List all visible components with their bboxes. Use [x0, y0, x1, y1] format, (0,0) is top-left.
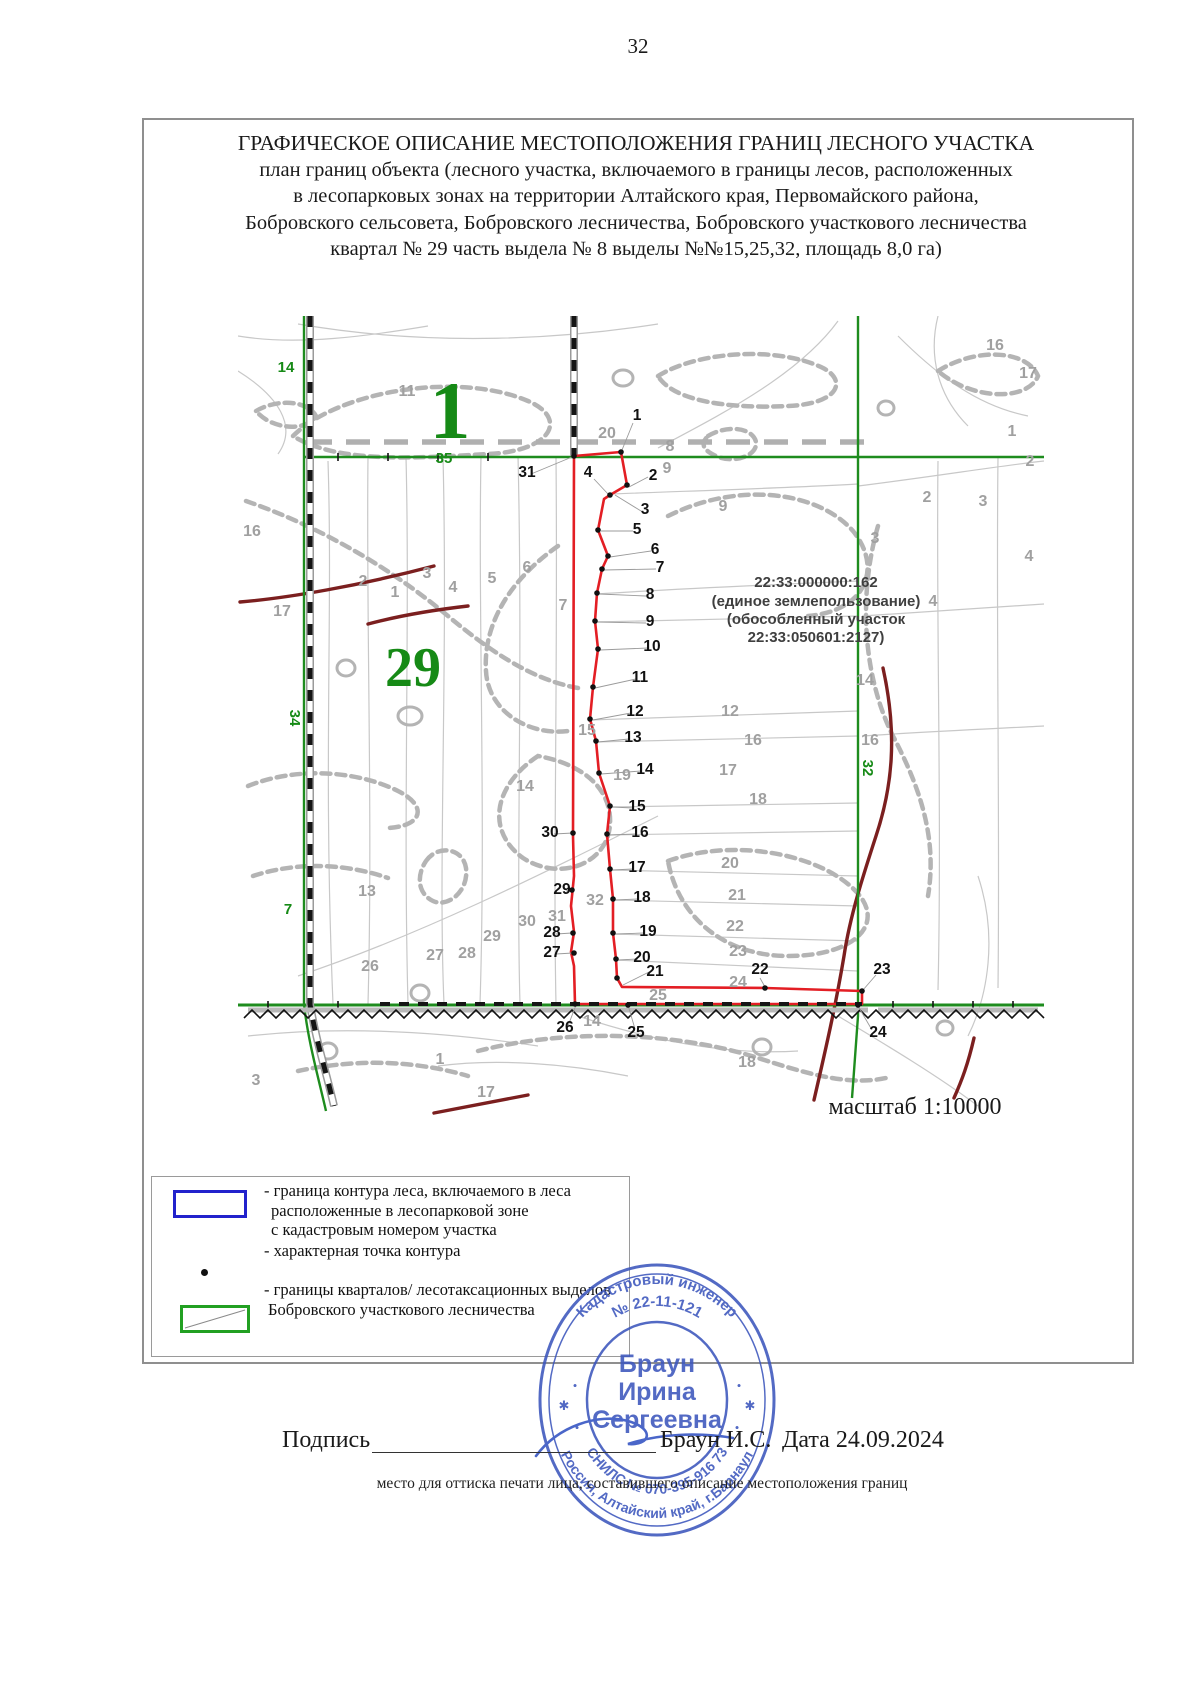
svg-text:•: • [737, 1378, 742, 1393]
svg-text:✱: ✱ [745, 1398, 756, 1413]
title-line-3: в лесопарковых зонах на территории Алтай… [150, 183, 1122, 210]
map-label: 22 [726, 918, 744, 935]
map-label: 34 [286, 710, 303, 727]
map-label: 4 [584, 464, 593, 481]
legend-symbol-quartal-boundary [180, 1305, 250, 1333]
map-label: 11 [399, 383, 416, 400]
map-label: 21 [646, 963, 664, 980]
map-label: 14 [516, 778, 534, 795]
signature-line [372, 1452, 656, 1453]
map-label: 31 [518, 464, 536, 481]
map-scale: масштаб 1:10000 [800, 1094, 1030, 1121]
stamp-place-note: место для оттиска печати лица, составивш… [242, 1475, 1042, 1493]
stamp-name-line2: Ирина [618, 1378, 697, 1406]
map-label: 35 [436, 450, 453, 467]
legend-symbol-point [201, 1269, 208, 1276]
map-label: 3 [871, 530, 880, 547]
map-label: 1 [1008, 423, 1017, 440]
map-label: 14 [856, 672, 874, 689]
map-label: 25 [649, 987, 667, 1004]
map-label: 30 [541, 824, 558, 841]
map-label: 2 [359, 573, 368, 590]
svg-text:№ 22-11-121: № 22-11-121 [609, 1293, 705, 1322]
legend-item-point: - характерная точка контура [264, 1241, 460, 1261]
map-label: 2 [923, 489, 932, 506]
map-label: 1 [430, 365, 471, 456]
map-label: 14 [278, 359, 295, 376]
map-label: 16 [631, 824, 649, 841]
map-label: 24 [869, 1024, 887, 1041]
map-label: 3 [423, 565, 432, 582]
map-label: 17 [273, 603, 291, 620]
map-label: 3 [641, 501, 650, 518]
map-label: 16 [986, 337, 1004, 354]
map-label: 24 [729, 974, 747, 991]
map-label: 1 [633, 407, 642, 424]
map-label: 25 [627, 1024, 645, 1041]
map-label: 26 [361, 958, 379, 975]
map-label: 15 [578, 722, 596, 739]
engineer-stamp: Кадастровый инженер № 22-11-121 Россия, … [527, 1260, 787, 1540]
map-label: 32 [586, 892, 604, 909]
map-label: 9 [663, 460, 672, 477]
map-label: 18 [738, 1054, 756, 1071]
legend-text: - характерная точка контура [264, 1241, 460, 1261]
map-label: 27 [543, 944, 560, 961]
map-label: 20 [598, 425, 616, 442]
svg-text:•: • [573, 1378, 578, 1393]
title-line-1: ГРАФИЧЕСКОЕ ОПИСАНИЕ МЕСТОПОЛОЖЕНИЯ ГРАН… [150, 130, 1122, 157]
legend-symbol-parcel-boundary [173, 1190, 247, 1218]
map-label: 4 [929, 593, 938, 610]
legend-text: - граница контура леса, включаемого в ле… [264, 1181, 571, 1201]
map-label: 11 [632, 669, 649, 686]
map-label: 17 [628, 859, 645, 876]
svg-text:(единое землепользование): (единое землепользование) [712, 593, 921, 610]
map-label: 19 [639, 923, 657, 940]
map-label: 4 [1025, 548, 1034, 565]
map-label: 16 [243, 523, 261, 540]
map-label: 16 [744, 732, 762, 749]
map-label: 3 [252, 1072, 261, 1089]
map-label: 6 [651, 541, 660, 558]
map-label: 17 [1019, 365, 1037, 382]
signature-date: Дата 24.09.2024 [782, 1427, 944, 1454]
map-label: 16 [861, 732, 879, 749]
date-label: Дата [782, 1427, 830, 1453]
title-line-4: Бобровского сельсовета, Бобровского лесн… [150, 210, 1122, 237]
map-label: 12 [721, 703, 739, 720]
map-label: 17 [719, 762, 737, 779]
map-label: 10 [643, 638, 660, 655]
map-label: 3 [979, 493, 988, 510]
legend-text: с кадастровым номером участка [264, 1220, 571, 1240]
map-label: 20 [721, 855, 739, 872]
map-label: 8 [666, 438, 675, 455]
railway-line-left [310, 316, 334, 1106]
map-label: 18 [633, 889, 651, 906]
map-label: 31 [548, 908, 566, 925]
map-label: 12 [626, 703, 643, 720]
map-label: 13 [624, 729, 642, 746]
map-label: 1 [391, 584, 400, 601]
title-line-5: квартал № 29 часть выдела № 8 выделы №№1… [150, 236, 1122, 263]
signer-name: Браун И.С. [660, 1427, 771, 1454]
map-label: 15 [628, 798, 646, 815]
title-line-2: план границ объекта (лесного участка, вк… [150, 157, 1122, 184]
map-label: 23 [729, 943, 747, 960]
map-label: 18 [749, 791, 767, 808]
map-label: 7 [284, 901, 292, 918]
svg-text:(обособленный участок: (обособленный участок [727, 611, 906, 628]
legend-item-parcel: - граница контура леса, включаемого в ле… [264, 1181, 571, 1240]
svg-text:22:33:050601:2127): 22:33:050601:2127) [748, 629, 885, 646]
map-label: 14 [583, 1013, 601, 1030]
page-number: 32 [608, 34, 668, 59]
stamp-name-line1: Браун [619, 1350, 695, 1378]
map-label: 19 [613, 767, 631, 784]
map-label: 22 [751, 961, 768, 978]
document-page: { "page_number": "32", "title": { "line1… [0, 0, 1200, 1697]
map-label: 13 [358, 883, 376, 900]
map-label: 7 [559, 597, 568, 614]
map-label: 21 [728, 887, 746, 904]
map-label: 9 [646, 613, 655, 630]
diagonal-line-icon [183, 1308, 247, 1330]
map-label: 5 [488, 570, 497, 587]
map-label: 27 [426, 947, 444, 964]
map-label: 29 [483, 928, 501, 945]
map-label: 9 [719, 498, 728, 515]
map-label: 7 [656, 559, 665, 576]
map-label: 28 [458, 945, 476, 962]
map-label: 29 [553, 881, 571, 898]
map-label: 2 [649, 467, 658, 484]
map-label: 8 [646, 586, 655, 603]
map-label: 32 [859, 760, 876, 777]
signature-label: Подпись [282, 1427, 370, 1454]
map-label: 23 [873, 961, 891, 978]
date-value: 24.09.2024 [836, 1427, 944, 1453]
map-label: 4 [449, 579, 458, 596]
parcel-boundary [571, 452, 862, 1004]
map-label: 28 [543, 924, 561, 941]
map-label: 14 [636, 761, 654, 778]
map-label: 6 [523, 559, 532, 576]
stamp-arc-number: № 22-11-121 [609, 1293, 705, 1322]
map-label: 30 [518, 913, 536, 930]
forest-plot-map: 22:33:000000:162 (единое землепользовани… [238, 316, 1050, 1116]
map-label: 2 [1026, 453, 1035, 470]
legend-text: расположенные в лесопарковой зоне [264, 1201, 571, 1221]
map-label: 1 [436, 1051, 445, 1068]
map-label: 29 [385, 637, 441, 699]
map-label: 17 [477, 1084, 495, 1101]
document-title: ГРАФИЧЕСКОЕ ОПИСАНИЕ МЕСТОПОЛОЖЕНИЯ ГРАН… [150, 130, 1122, 263]
cadastral-number-note: 22:33:000000:162 (единое землепользовани… [712, 574, 921, 646]
svg-text:22:33:000000:162: 22:33:000000:162 [754, 574, 877, 591]
map-label: 26 [556, 1019, 574, 1036]
map-label: 5 [633, 521, 642, 538]
